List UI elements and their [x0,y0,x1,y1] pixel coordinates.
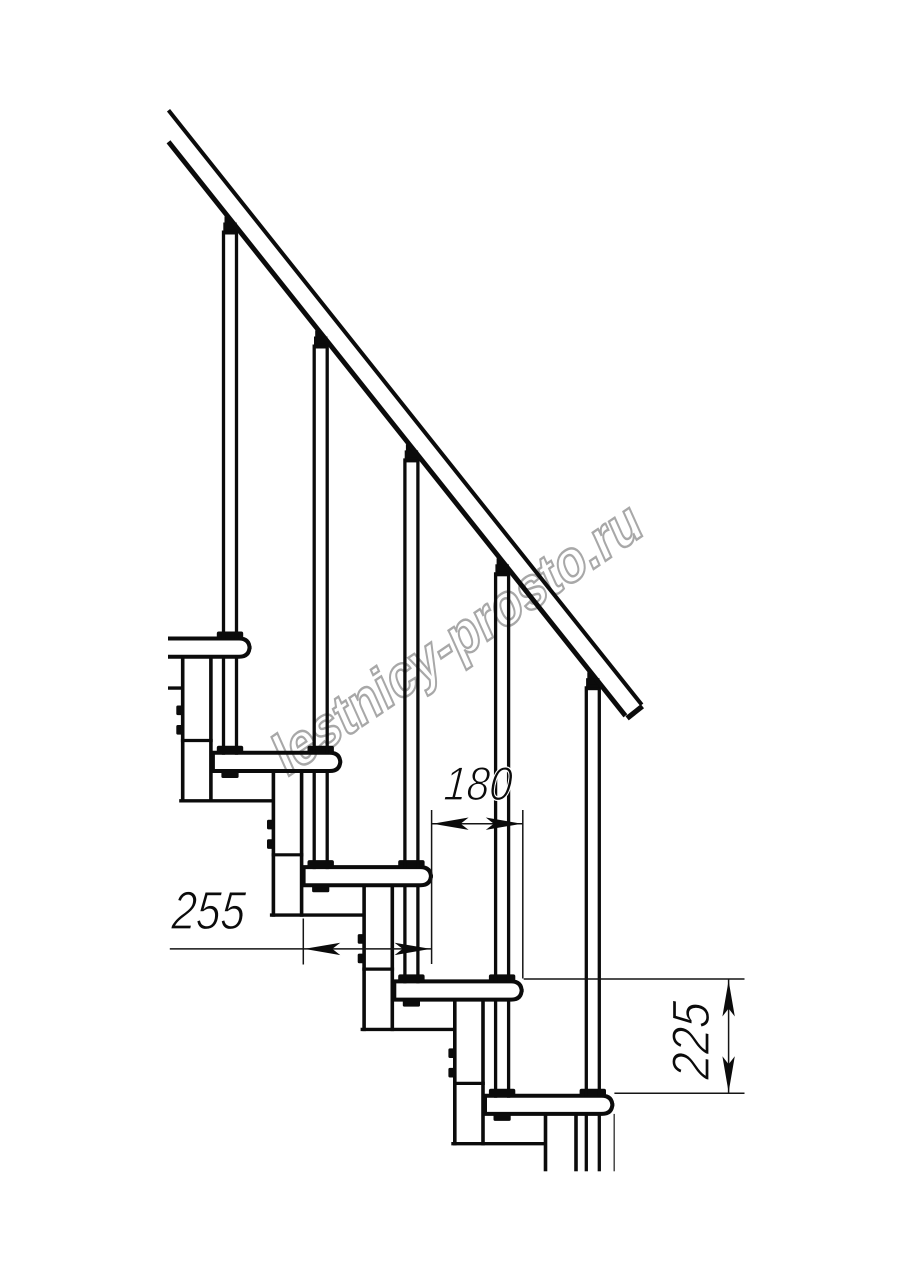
svg-text:255: 255 [169,881,248,941]
svg-text:lestnicy-prosto.ru: lestnicy-prosto.ru [265,486,651,790]
svg-text:180: 180 [442,758,514,810]
svg-text:225: 225 [661,999,721,1082]
